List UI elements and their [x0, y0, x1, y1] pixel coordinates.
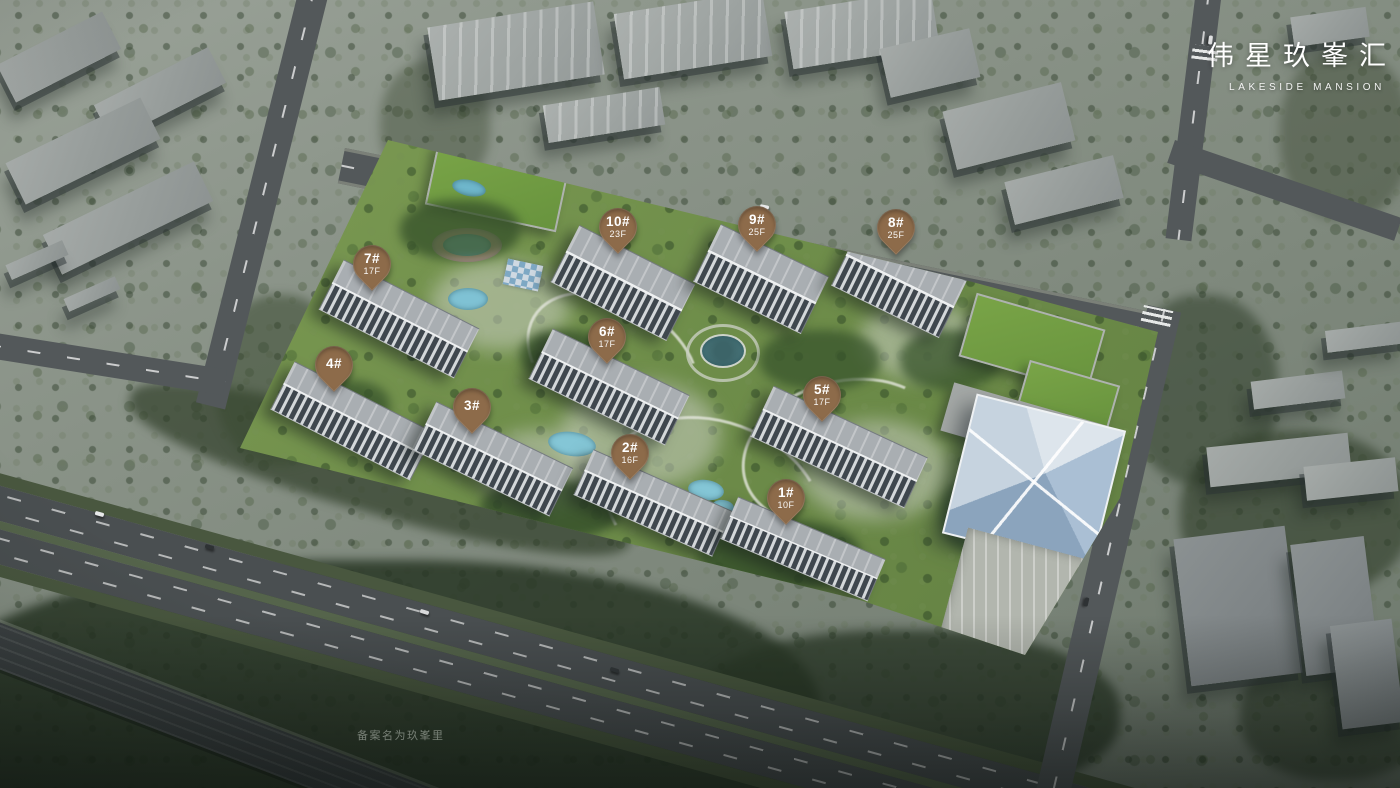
marker-label: 5#	[814, 383, 830, 397]
building-marker-5[interactable]: 5#17F	[795, 368, 849, 422]
marker-label: 2#	[622, 441, 638, 455]
building-marker-6[interactable]: 6#17F	[580, 310, 634, 364]
marker-label: 9#	[749, 213, 765, 227]
marker-floors: 23F	[609, 230, 626, 239]
site-tree-cluster	[400, 200, 520, 260]
registration-footnote: 备案名为玖峯里	[357, 727, 445, 743]
building-marker-3[interactable]: 3#	[445, 380, 499, 434]
project-logo: 伟星玖峯汇 LAKESIDE MANSION	[1207, 34, 1386, 93]
marker-label: 1#	[778, 486, 794, 500]
marker-label: 7#	[364, 252, 380, 266]
marker-label: 8#	[888, 216, 904, 230]
marker-floors: 17F	[813, 398, 830, 407]
project-name-chinese: 伟星玖峯汇	[1207, 34, 1397, 73]
marker-floors: 16F	[621, 456, 638, 465]
building-marker-2[interactable]: 2#16F	[603, 426, 657, 480]
marker-floors: 25F	[887, 231, 904, 240]
building-marker-10[interactable]: 10#23F	[591, 200, 645, 254]
marker-label: 4#	[326, 357, 342, 371]
city-building	[1330, 619, 1400, 730]
central-lake	[700, 334, 746, 368]
marker-floors: 17F	[363, 267, 380, 276]
masterplan-render: 1#10F 2#16F 3# 4# 5#17F 6#17F 7#17F 8#25…	[0, 0, 1400, 788]
building-marker-8[interactable]: 8#25F	[869, 201, 923, 255]
marker-label: 6#	[599, 325, 615, 339]
marker-floors: 25F	[748, 228, 765, 237]
marker-floors: 17F	[598, 340, 615, 349]
project-name-english: LAKESIDE MANSION	[1207, 82, 1385, 93]
building-marker-1[interactable]: 1#10F	[759, 471, 813, 525]
building-marker-4[interactable]: 4#	[307, 338, 361, 392]
pond	[448, 288, 488, 310]
marker-label: 10#	[606, 215, 630, 229]
building-marker-9[interactable]: 9#25F	[730, 198, 784, 252]
marker-label: 3#	[464, 399, 480, 413]
building-marker-7[interactable]: 7#17F	[345, 237, 399, 291]
marker-floors: 10F	[777, 501, 794, 510]
city-building	[1173, 526, 1302, 687]
